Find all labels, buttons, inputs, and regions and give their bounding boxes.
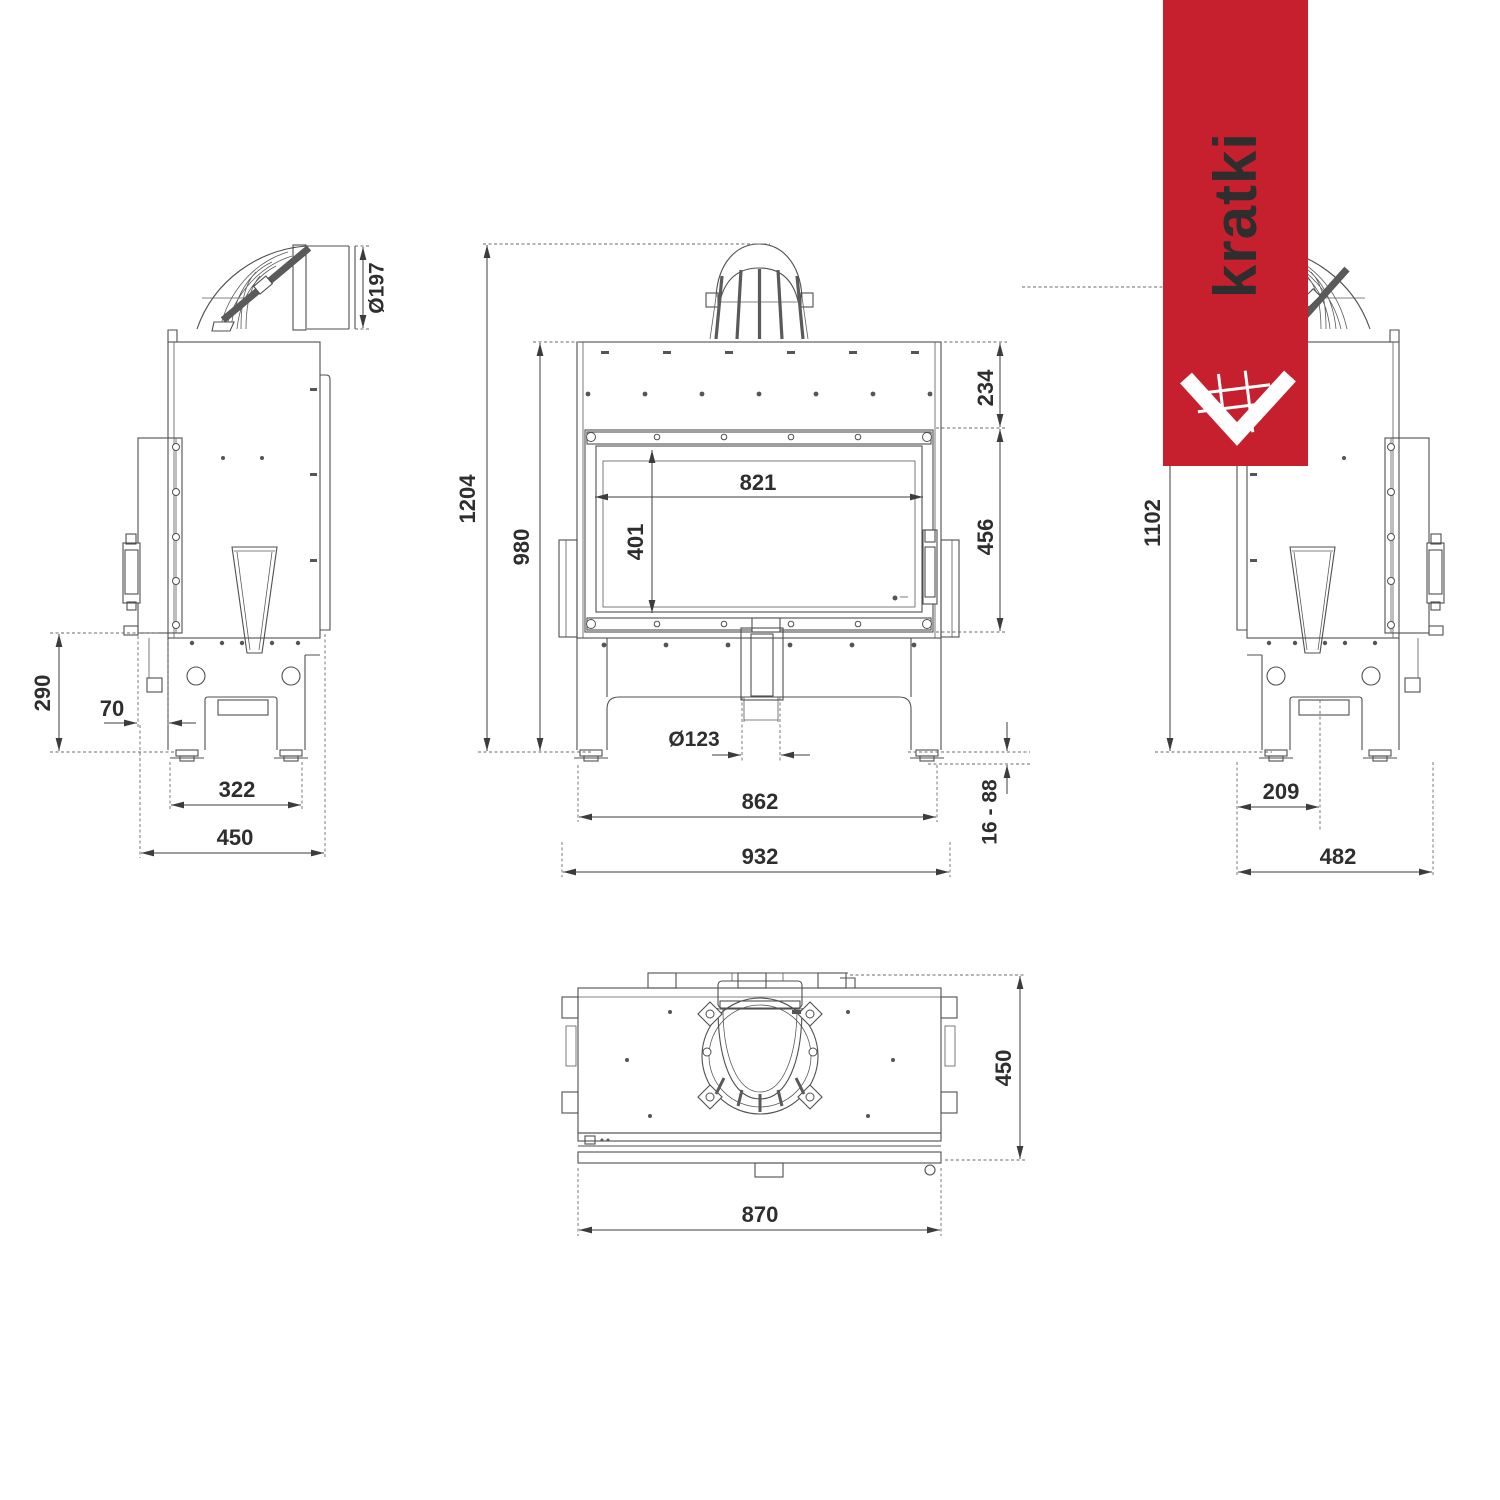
dim-total-width: 932 — [742, 844, 779, 869]
dim-feet-adjust-range: 16 - 88 — [979, 779, 1002, 845]
base-right — [1247, 638, 1420, 761]
dim-top-depth: 450 — [991, 1050, 1016, 1087]
brand-logo-text: kratki — [1202, 132, 1269, 298]
dim-flue-axis-height: 1102 — [1140, 499, 1165, 547]
dims-front-view: 1204 980 234 456 821 401 Ø123 862 932 — [455, 244, 1030, 877]
kratki-logo-banner: kratki — [1163, 0, 1308, 466]
dim-depth-right: 482 — [1320, 844, 1357, 869]
top-view-details — [562, 997, 957, 1177]
dim-flue-diameter: Ø197 — [366, 262, 389, 313]
dim-total-height: 1204 — [455, 474, 480, 524]
glass-logo-mark — [893, 596, 898, 601]
top-view: 870 450 — [562, 973, 1026, 1236]
rear-rail-right — [1385, 438, 1444, 635]
flue-elbow-left — [197, 245, 355, 331]
fireplace-dimension-drawing: Ø197 290 70 322 450 — [0, 0, 1500, 1500]
dim-glass-height: 401 — [623, 524, 648, 561]
dim-body-width: 862 — [742, 789, 779, 814]
base-front — [559, 540, 959, 761]
flue-flange-top — [698, 998, 822, 1114]
ash-outlet-box — [741, 628, 783, 700]
dim-outlet-offset: 209 — [1263, 779, 1300, 804]
flue-duct-top — [718, 981, 802, 1008]
front-view: 1204 980 234 456 821 401 Ø123 862 932 — [455, 244, 1030, 877]
dim-top-width: 870 — [742, 1202, 779, 1227]
rear-rail-left — [123, 438, 182, 635]
left-side-view: Ø197 290 70 322 450 — [30, 245, 389, 858]
dim-door-height: 456 — [973, 519, 998, 556]
base-left — [147, 638, 320, 761]
dims-left-view: Ø197 290 70 322 450 — [30, 246, 389, 858]
dim-rear-height: 290 — [30, 675, 55, 712]
dim-body-height: 980 — [509, 529, 534, 566]
dim-top-panel-height: 234 — [973, 369, 998, 406]
dim-feet-spacing: 322 — [219, 777, 256, 802]
dim-depth-left: 450 — [217, 825, 254, 850]
dim-glass-width: 821 — [740, 470, 777, 495]
dim-rail-offset: 70 — [100, 696, 124, 721]
body-left — [168, 330, 330, 653]
chimney-cap — [706, 244, 813, 339]
firebox-funnel-right — [1290, 547, 1335, 653]
front-notch — [755, 1163, 783, 1177]
technical-drawing-page: Ø197 290 70 322 450 — [0, 0, 1500, 1500]
dim-outlet-diameter: Ø123 — [668, 728, 719, 751]
